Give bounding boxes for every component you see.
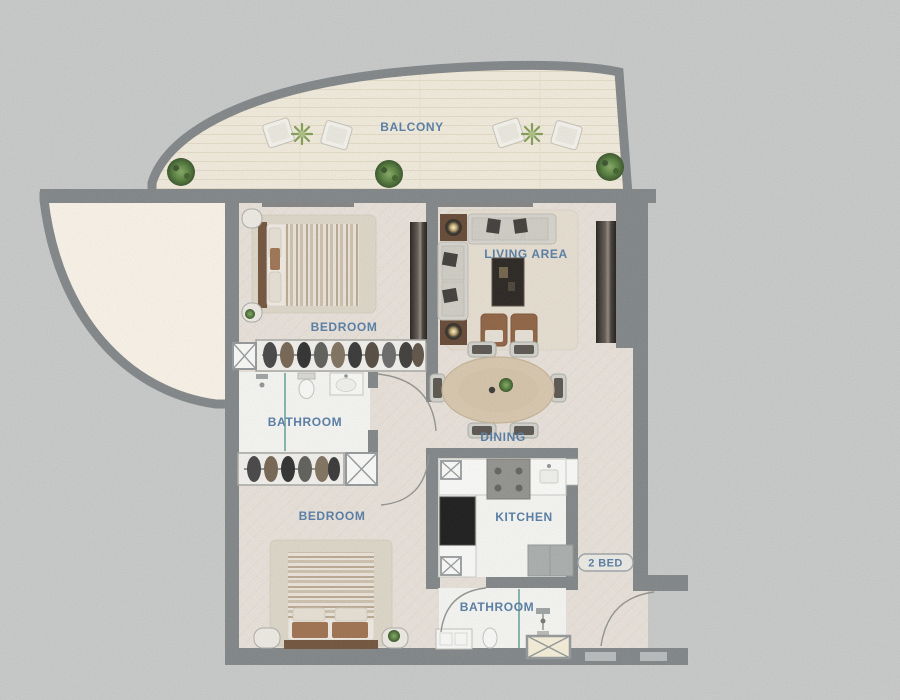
kitchen-pass-through (566, 459, 578, 485)
plant-icon (375, 160, 403, 188)
tv-unit (410, 222, 427, 343)
wall-bottom (225, 648, 688, 665)
shaft-symbol (441, 461, 461, 479)
lamp-icon (445, 219, 462, 236)
wall-kitchen-left (426, 448, 438, 589)
kitchen-label: KITCHEN (495, 510, 553, 524)
tv-unit (596, 221, 616, 343)
plant-icon (596, 153, 624, 181)
plant-icon (245, 309, 255, 319)
wall-top (40, 189, 656, 203)
coffee-table (492, 258, 524, 306)
toilet-icon (483, 628, 497, 648)
toilet-icon (298, 373, 315, 399)
nightstand (242, 209, 262, 228)
floor-plan-canvas: BALCONY (0, 0, 900, 700)
stove-icon (487, 459, 530, 499)
plant-icon (388, 630, 400, 642)
bed-icon (258, 222, 359, 308)
bathroom2-label: BATHROOM (460, 600, 535, 614)
nightstand (254, 628, 280, 648)
wall-kitchen-top (426, 448, 578, 458)
living-label: LIVING AREA (484, 247, 568, 261)
wall-bathroom2-corner (426, 577, 440, 588)
bottle-icon (489, 387, 495, 393)
bedroom1-label: BEDROOM (311, 320, 378, 334)
floor-plan: BALCONY (0, 0, 900, 700)
lamp-icon (445, 323, 462, 340)
bathroom1-label: BATHROOM (268, 415, 343, 429)
sliding-door-glass (262, 203, 354, 207)
shaft-symbol (527, 636, 570, 658)
wall-bathroom2-top (486, 577, 578, 588)
dining-table-shade (458, 368, 538, 412)
wall-bathroom1-right-b (368, 430, 378, 452)
wall-pier-living (616, 189, 648, 348)
dining-chair (510, 342, 538, 357)
oven-icon (440, 497, 475, 545)
sink-icon (330, 373, 363, 395)
wall-bedroom1-living (426, 200, 438, 402)
wall-left (225, 189, 239, 662)
armchair-icon (511, 314, 537, 346)
fridge-icon (528, 545, 573, 576)
dining-label: DINING (480, 430, 526, 444)
wardrobe (256, 340, 426, 371)
plant-icon (522, 124, 542, 144)
bedroom2-label: BEDROOM (299, 509, 366, 523)
window-segment (640, 652, 667, 661)
shaft-symbol (233, 343, 256, 369)
shaft-symbol (441, 557, 461, 575)
dining-chair (468, 342, 496, 357)
shaft-symbol (346, 453, 377, 485)
sliding-door-glass (438, 203, 533, 207)
armchair-icon (481, 314, 507, 346)
window-segment (585, 652, 616, 661)
wall-bathroom1-right-a (368, 372, 378, 388)
plant-icon (167, 158, 195, 186)
wardrobe (238, 453, 344, 485)
bed-icon (284, 552, 378, 649)
plant-icon (499, 378, 513, 392)
plant-icon (292, 124, 312, 144)
unit-type-badge: 2 BED (578, 554, 633, 571)
balcony-label: BALCONY (380, 120, 444, 134)
unit-type-label: 2 BED (588, 558, 622, 570)
wall-entry-stub (648, 575, 688, 591)
